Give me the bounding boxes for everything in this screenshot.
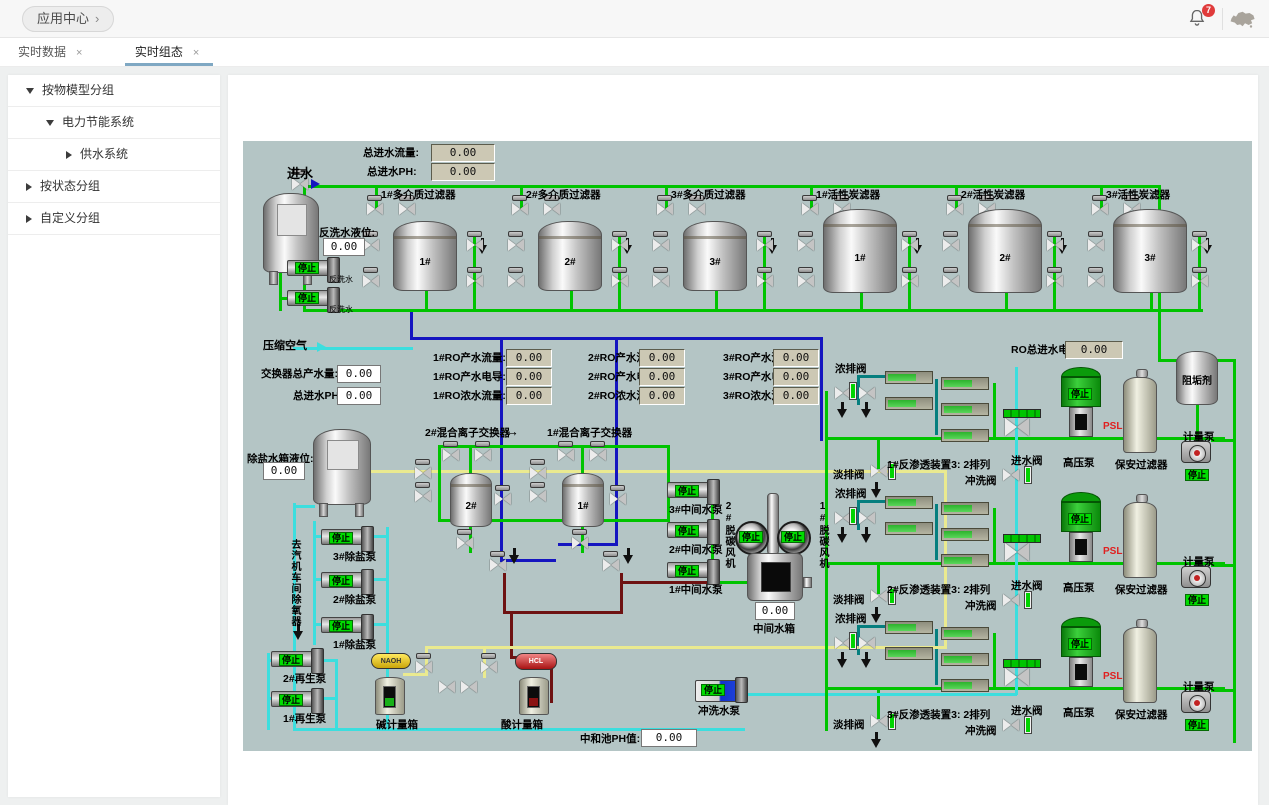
fan-status-badge[interactable]: 停止 <box>781 531 805 543</box>
inlet-valve-icon[interactable] <box>1005 418 1029 436</box>
pipe <box>820 337 823 441</box>
tab-label: 实时数据 <box>18 45 66 59</box>
china-map-icon[interactable] <box>1227 10 1257 28</box>
filter-title: 2#多介质过滤器 <box>526 189 601 201</box>
ro-membrane <box>885 397 933 410</box>
pipe <box>1150 291 1153 309</box>
main-panel: 进水 总进水流量: 0.00 总进水PH: 0.00 反洗水液位: 0.00 停… <box>228 75 1258 805</box>
psl-alarm-label: PSL <box>1103 421 1122 433</box>
dosing-pump[interactable] <box>1181 566 1211 588</box>
valve-icon[interactable] <box>508 239 524 251</box>
pump-label: 1#再生泵 <box>283 713 326 725</box>
inlet-valve-label: 进水阀 <box>1011 455 1043 467</box>
valve-icon[interactable] <box>1192 275 1208 287</box>
valve-icon[interactable] <box>481 661 497 673</box>
acid-tank-label: 酸计量箱 <box>501 719 543 731</box>
flow-arrow-down <box>861 534 871 543</box>
pump-label: 2#再生泵 <box>283 673 326 685</box>
pipe <box>321 347 413 350</box>
valve-icon[interactable] <box>1088 275 1104 287</box>
ion-exchanger-tank[interactable]: 2# <box>450 473 492 527</box>
total-ph-label: 总进水PH: <box>367 166 417 178</box>
valve-icon[interactable] <box>530 490 546 502</box>
ro-metric-label: 1#RO产水电导: <box>433 371 506 383</box>
sensor-icon <box>902 267 917 273</box>
flush-valve-label: 冲洗阀 <box>965 725 997 737</box>
inlet-valve-actuator <box>1003 534 1041 543</box>
tank-window <box>527 686 540 708</box>
valve-icon[interactable] <box>835 512 851 524</box>
pump-status-badge[interactable]: 停止 <box>675 525 699 537</box>
pump-status-badge[interactable]: 停止 <box>329 620 353 632</box>
valve-icon[interactable] <box>902 275 918 287</box>
valve-icon[interactable] <box>835 387 851 399</box>
sensor-icon <box>415 482 430 488</box>
pump-status-badge[interactable]: 停止 <box>675 565 699 577</box>
conc-valve-label: 浓排阀 <box>835 488 867 500</box>
security-filter <box>1123 377 1157 453</box>
pipe <box>267 653 270 730</box>
sensor-icon <box>508 231 523 237</box>
pump-status-badge[interactable]: 停止 <box>675 485 699 497</box>
sensor-icon <box>798 231 813 237</box>
pipe <box>615 337 618 545</box>
valve-icon[interactable] <box>1192 239 1208 251</box>
pipe <box>570 291 573 309</box>
inlet-ph-label: 总进水PH: <box>293 390 343 402</box>
pump-status-badge[interactable]: 停止 <box>295 292 319 304</box>
valve-icon[interactable] <box>859 637 875 649</box>
fan-label: 1#脱碳风机 <box>815 501 830 593</box>
valve-icon[interactable] <box>802 203 818 215</box>
valve-icon[interactable] <box>1003 594 1019 606</box>
pipe <box>935 379 938 435</box>
pipe <box>373 535 386 538</box>
pump-label: 2#中间水泵 <box>669 544 723 556</box>
ro-metric-value: 0.00 <box>639 349 685 367</box>
perm-valve-label: 淡排阀 <box>833 719 865 731</box>
pipe <box>303 185 1161 188</box>
flow-arrow-right <box>317 342 326 352</box>
valve-icon[interactable] <box>835 637 851 649</box>
valve-indicator <box>1025 717 1031 733</box>
pipe <box>503 611 623 614</box>
valve-icon[interactable] <box>1092 203 1108 215</box>
valve-icon[interactable] <box>495 493 511 505</box>
pump-status-badge[interactable]: 停止 <box>1185 594 1209 606</box>
ro-unit-title: 2#反渗透装置3: 2排列 <box>887 584 990 596</box>
security-filter-label: 保安过滤器 <box>1115 584 1168 596</box>
sensor-icon <box>530 459 545 465</box>
backwash-level-value: 0.00 <box>323 238 365 256</box>
ro-membrane <box>941 679 989 692</box>
fan-label: 2#脱碳风机 <box>721 501 736 593</box>
sensor-icon <box>902 231 917 237</box>
flow-arrow-down <box>293 631 303 640</box>
valve-icon[interactable] <box>943 275 959 287</box>
valve-icon[interactable] <box>475 449 491 461</box>
sensor-icon <box>590 441 605 447</box>
ro-membrane <box>941 502 989 515</box>
sensor-icon <box>415 459 430 465</box>
valve-icon[interactable] <box>1047 239 1063 251</box>
flow-arrow-down <box>837 409 847 418</box>
valve-indicator <box>850 383 856 399</box>
tab-realtime-data[interactable]: 实时数据× <box>8 38 96 66</box>
valve-icon[interactable] <box>1003 469 1019 481</box>
sensor-icon <box>457 529 472 535</box>
valve-icon[interactable] <box>947 203 963 215</box>
inlet-ph-value: 0.00 <box>337 387 381 405</box>
valve-icon[interactable] <box>653 275 669 287</box>
security-filter <box>1123 627 1157 703</box>
hp-pump-label: 高压泵 <box>1063 457 1095 469</box>
to-deaerator-label: 去汽机车间除氧器 <box>287 539 302 627</box>
backwash-pump-label: 反洗水 <box>329 274 353 286</box>
valve-icon[interactable] <box>544 203 560 215</box>
valve-icon[interactable] <box>871 465 887 477</box>
valve-icon[interactable] <box>461 681 477 693</box>
valve-icon[interactable] <box>508 275 524 287</box>
ro-metric-value: 0.00 <box>773 368 819 386</box>
valve-icon[interactable] <box>1047 275 1063 287</box>
sidebar-item-label: 按状态分组 <box>40 179 100 193</box>
hp-pump-label: 高压泵 <box>1063 707 1095 719</box>
filter-tank[interactable]: 3# <box>683 221 747 291</box>
flow-arrow-down <box>871 739 881 748</box>
tab-bar: 实时数据× 实时组态× <box>0 38 1269 67</box>
pump-status-badge[interactable]: 停止 <box>279 694 303 706</box>
ro-membrane <box>885 496 933 509</box>
valve-icon[interactable] <box>657 203 673 215</box>
sensor-icon <box>610 485 625 491</box>
mid-tank-value: 0.00 <box>755 602 795 620</box>
app-center-button[interactable]: 应用中心› <box>22 6 114 32</box>
ro-metric-value: 0.00 <box>639 368 685 386</box>
valve-icon[interactable] <box>467 239 483 251</box>
ro-membrane <box>885 371 933 384</box>
valve-icon[interactable] <box>1088 239 1104 251</box>
pump-status-badge[interactable]: 停止 <box>279 654 303 666</box>
pump-label: 1#除盐泵 <box>333 639 376 651</box>
ro-membrane <box>885 647 933 660</box>
valve-icon[interactable] <box>399 203 415 215</box>
valve-icon[interactable] <box>798 239 814 251</box>
ion-exchanger-title: 2#混合离子交换器 <box>425 427 510 439</box>
hp-pump-label: 高压泵 <box>1063 582 1095 594</box>
dosing-pump[interactable] <box>1181 691 1211 713</box>
valve-icon[interactable] <box>443 449 459 461</box>
valve-icon[interactable] <box>943 239 959 251</box>
sidebar-item-label: 按物模型分组 <box>42 83 114 97</box>
filter-tank[interactable]: 2# <box>968 209 1042 293</box>
valve-icon[interactable] <box>367 203 383 215</box>
sensor-icon <box>1192 267 1207 273</box>
pump-label: 2#除盐泵 <box>333 594 376 606</box>
flow-arrow-down <box>861 409 871 418</box>
sensor-icon <box>495 485 510 491</box>
notification-bell-button[interactable]: 7 <box>1187 8 1209 30</box>
exchanger-total-label: 交换器总产水量: <box>261 368 338 380</box>
hp-pump[interactable]: 停止 <box>1061 492 1101 562</box>
neutral-ph-value: 0.00 <box>641 729 697 747</box>
chevron-right-icon <box>26 183 32 191</box>
pipe <box>410 337 822 340</box>
valve-icon[interactable] <box>798 275 814 287</box>
arrow-right-icon: → <box>505 425 519 437</box>
ro-membrane <box>941 429 989 442</box>
sensor-icon <box>416 653 431 659</box>
valve-icon[interactable] <box>859 512 875 524</box>
close-icon[interactable]: × <box>193 47 199 59</box>
pipe <box>833 687 1225 690</box>
pipe <box>860 291 863 309</box>
ro-membrane <box>941 377 989 390</box>
pipe <box>313 521 316 645</box>
valve-icon[interactable] <box>1003 719 1019 731</box>
ro-metric-value: 0.00 <box>506 368 552 386</box>
pipe <box>503 573 506 613</box>
tank-leg <box>269 271 278 285</box>
ro-metric-value: 0.00 <box>773 387 819 405</box>
pipe <box>373 623 386 626</box>
sensor-icon <box>467 231 482 237</box>
sensor-icon <box>490 551 505 557</box>
sensor-icon <box>572 529 587 535</box>
ro-unit-title: 1#反渗透装置3: 2排列 <box>887 459 990 471</box>
total-ph-value: 0.00 <box>431 163 495 181</box>
inlet-valve-label: 进水阀 <box>1011 705 1043 717</box>
pump-status-badge[interactable]: 停止 <box>329 575 353 587</box>
ro-metric-value: 0.00 <box>506 349 552 367</box>
valve-icon[interactable] <box>757 275 773 287</box>
valve-icon[interactable] <box>416 661 432 673</box>
pipe <box>438 445 441 521</box>
pipe <box>303 309 1203 312</box>
pipe <box>935 504 938 560</box>
sensor-icon <box>558 441 573 447</box>
valve-icon[interactable] <box>467 275 483 287</box>
sensor-icon <box>475 441 490 447</box>
sidebar-item-power-saving[interactable]: 电力节能系统 <box>8 107 220 139</box>
sidebar-tree: 按物模型分组 电力节能系统 供水系统 按状态分组 自定义分组 <box>8 75 220 797</box>
ion-exchanger-title: 1#混合离子交换器 <box>547 427 632 439</box>
pipe <box>403 673 427 676</box>
valve-icon[interactable] <box>558 449 574 461</box>
pipe <box>438 445 670 448</box>
sensor-icon <box>508 267 523 273</box>
valve-icon[interactable] <box>859 387 875 399</box>
chevron-right-icon: › <box>95 11 99 26</box>
valve-icon[interactable] <box>590 449 606 461</box>
pipe <box>993 383 996 439</box>
pipe <box>335 659 338 730</box>
chevron-down-icon <box>46 120 54 126</box>
pipe <box>833 437 1225 440</box>
dosing-pump[interactable] <box>1181 441 1211 463</box>
flow-arrow-down <box>871 614 881 623</box>
ro-membrane <box>885 522 933 535</box>
flush-valve-label: 冲洗阀 <box>965 600 997 612</box>
mid-tank-label: 中间水箱 <box>753 623 795 635</box>
flow-arrow-down <box>509 555 519 564</box>
valve-icon[interactable] <box>415 467 431 479</box>
sensor-icon <box>612 231 627 237</box>
vent-pipe <box>767 493 779 555</box>
pipe <box>935 629 938 685</box>
valve-indicator <box>850 508 856 524</box>
ro-metric-value: 0.00 <box>773 349 819 367</box>
pipe <box>323 659 335 662</box>
ro-membrane <box>941 554 989 567</box>
top-bar: 应用中心› 7 <box>0 0 1269 38</box>
valve-icon[interactable] <box>439 681 455 693</box>
filter-tank[interactable]: 2# <box>538 221 602 291</box>
pump-status-badge[interactable]: 停止 <box>1185 469 1209 481</box>
sensor-icon <box>802 195 817 201</box>
sensor-icon <box>467 267 482 273</box>
ro-inlet-cond-value: 0.00 <box>1065 341 1123 359</box>
pipe <box>1233 359 1236 743</box>
filter-tank[interactable]: 1# <box>823 209 897 293</box>
inlet-valve-label: 进水阀 <box>1011 580 1043 592</box>
flow-arrow-down <box>871 489 881 498</box>
ro-membrane <box>885 621 933 634</box>
ion-exchanger-tank[interactable]: 1# <box>562 473 604 527</box>
fan-status-badge[interactable]: 停止 <box>739 531 763 543</box>
valve-icon[interactable] <box>603 559 619 571</box>
hp-pump[interactable]: 停止 <box>1061 617 1101 687</box>
filter-title: 3#多介质过滤器 <box>671 189 746 201</box>
sidebar-item-status-group[interactable]: 按状态分组 <box>8 171 220 203</box>
inlet-valve-icon[interactable] <box>1005 543 1029 561</box>
ro-metric-label: 1#RO浓水流量: <box>433 390 506 402</box>
exchanger-total-value: 0.00 <box>337 365 381 383</box>
flow-arrow-right <box>311 179 320 189</box>
valve-icon[interactable] <box>572 537 588 549</box>
valve-icon[interactable] <box>612 239 628 251</box>
tab-realtime-hmi[interactable]: 实时组态× <box>125 38 213 66</box>
tab-label: 实时组态 <box>135 45 183 59</box>
pump-status-badge[interactable]: 停止 <box>1185 719 1209 731</box>
valve-indicator <box>1025 592 1031 608</box>
ro-membrane <box>941 627 989 640</box>
chevron-right-icon <box>66 151 72 159</box>
inlet-valve-actuator <box>1003 409 1041 418</box>
sidebar-item-model-group[interactable]: 按物模型分组 <box>8 75 220 107</box>
flow-arrow-down <box>837 534 847 543</box>
sensor-icon <box>1088 267 1103 273</box>
sensor-icon <box>1088 231 1103 237</box>
conc-valve-label: 浓排阀 <box>835 363 867 375</box>
total-flow-value: 0.00 <box>431 144 495 162</box>
sidebar-item-water-supply[interactable]: 供水系统 <box>8 139 220 171</box>
close-icon[interactable]: × <box>76 47 82 59</box>
hp-pump[interactable]: 停止 <box>1061 367 1101 437</box>
sensor-icon <box>603 551 618 557</box>
tank-window <box>383 686 396 708</box>
pump-status-badge[interactable]: 停止 <box>329 532 353 544</box>
sensor-icon <box>798 267 813 273</box>
pipe <box>550 667 553 703</box>
ro-membrane <box>941 653 989 666</box>
sensor-icon <box>657 195 672 201</box>
scada-canvas: 进水 总进水流量: 0.00 总进水PH: 0.00 反洗水液位: 0.00 停… <box>243 141 1252 751</box>
sensor-icon <box>943 231 958 237</box>
tank-leg <box>355 503 364 517</box>
ro-metric-value: 0.00 <box>506 387 552 405</box>
sensor-icon <box>947 195 962 201</box>
hcl-tank: HCL <box>515 653 557 670</box>
valve-icon[interactable] <box>490 559 506 571</box>
sidebar-item-label: 电力节能系统 <box>62 115 134 129</box>
pipe <box>857 375 887 378</box>
filter-tank[interactable]: 1# <box>393 221 457 291</box>
perm-valve-label: 淡排阀 <box>833 469 865 481</box>
valve-icon[interactable] <box>457 537 473 549</box>
sensor-icon <box>481 653 496 659</box>
valve-icon[interactable] <box>512 203 528 215</box>
ro-unit-title: 3#反渗透装置3: 2排列 <box>887 709 990 721</box>
pump-status-badge[interactable]: 停止 <box>295 262 319 274</box>
filter-title: 1#活性炭滤器 <box>816 189 880 201</box>
psl-alarm-label: PSL <box>1103 546 1122 558</box>
tank-leg <box>319 503 328 517</box>
naoh-tank: NAOH <box>371 653 411 669</box>
filter-tank[interactable]: 3# <box>1113 209 1187 293</box>
sensor-icon <box>1047 231 1062 237</box>
valve-icon[interactable] <box>871 715 887 727</box>
pipe <box>558 543 618 546</box>
valve-icon[interactable] <box>530 467 546 479</box>
sidebar-item-label: 供水系统 <box>80 147 128 161</box>
pipe <box>581 445 584 475</box>
valve-icon[interactable] <box>757 239 773 251</box>
divider <box>1222 8 1223 30</box>
valve-icon[interactable] <box>415 490 431 502</box>
sensor-icon <box>653 231 668 237</box>
valve-icon[interactable] <box>363 275 379 287</box>
pipe <box>993 508 996 564</box>
ro-metric-value: 0.00 <box>639 387 685 405</box>
pipe <box>857 625 887 628</box>
valve-icon[interactable] <box>653 239 669 251</box>
valve-icon[interactable] <box>363 239 379 251</box>
sensor-icon <box>512 195 527 201</box>
valve-indicator <box>850 633 856 649</box>
sensor-icon <box>1092 195 1107 201</box>
pump-label: 3#中间水泵 <box>669 504 723 516</box>
inlet-valve-actuator <box>1003 659 1041 668</box>
pump-status-badge[interactable]: 停止 <box>701 684 725 696</box>
chevron-right-icon <box>26 215 32 223</box>
sensor-icon <box>612 267 627 273</box>
inlet-valve-icon[interactable] <box>1005 668 1029 686</box>
security-filter-label: 保安过滤器 <box>1115 459 1168 471</box>
sensor-icon <box>367 195 382 201</box>
valve-icon[interactable] <box>902 239 918 251</box>
valve-icon[interactable] <box>871 590 887 602</box>
pipe <box>620 573 623 613</box>
sidebar-item-custom-group[interactable]: 自定义分组 <box>8 203 220 235</box>
flow-arrow-down <box>861 659 871 668</box>
neutral-ph-label: 中和池PH值: <box>580 733 640 745</box>
valve-icon[interactable] <box>612 275 628 287</box>
app-center-label: 应用中心 <box>37 11 89 26</box>
valve-icon[interactable] <box>689 203 705 215</box>
valve-icon[interactable] <box>610 493 626 505</box>
ro-membrane <box>941 528 989 541</box>
